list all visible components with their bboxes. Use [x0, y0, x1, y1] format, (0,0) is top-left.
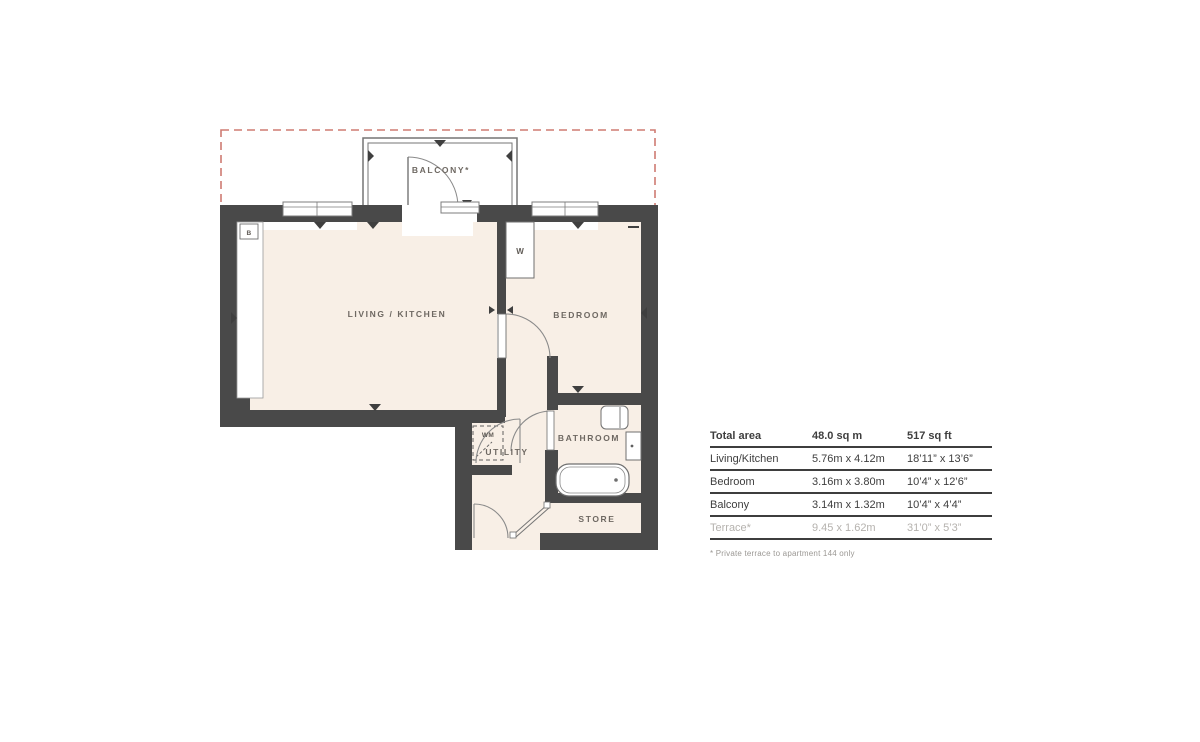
wall-divider-upper [497, 222, 506, 314]
row-label: Living/Kitchen [710, 453, 812, 465]
table-header-row: Total area 48.0 sq m 517 sq ft [710, 425, 992, 448]
balcony-door-sill [441, 202, 479, 213]
table-row-balcony: Balcony 3.14m x 1.32m 10’4” x 4’4” [710, 494, 992, 517]
total-area-metric: 48.0 sq m [812, 430, 907, 442]
wall-utility-top [472, 410, 505, 423]
total-area-imperial: 517 sq ft [907, 430, 992, 442]
row-label: Terrace* [710, 522, 812, 534]
wardrobe-label: W [516, 247, 524, 256]
window-b-bay [532, 222, 598, 230]
floorplan-drawing: LIVING / KITCHEN BEDROOM BATHROOM UTILIT… [0, 0, 1200, 742]
bathtub [556, 464, 629, 496]
floorplan-page: { "floorplan": { "rooms": { "living_kitc… [0, 0, 1200, 742]
row-imperial: 31’0” x 5’3” [907, 522, 992, 534]
washing-machine-label: WM [482, 432, 494, 439]
wall-column [547, 356, 558, 410]
kitchen-counter [237, 222, 263, 398]
row-metric: 5.76m x 4.12m [812, 453, 907, 465]
room-label-bedroom: BEDROOM [553, 310, 609, 320]
room-label-balcony: BALCONY* [412, 165, 470, 175]
wall-utility-bottom [472, 465, 512, 475]
room-label-bathroom: BATHROOM [558, 433, 620, 443]
table-row-terrace: Terrace* 9.45 x 1.62m 31’0” x 5’3” [710, 517, 992, 540]
row-metric: 3.14m x 1.32m [812, 499, 907, 511]
room-label-living-kitchen: LIVING / KITCHEN [348, 309, 447, 319]
wall-divider-lower [497, 358, 506, 417]
wall-left-step [237, 398, 250, 427]
row-imperial: 18’11” x 13’6” [907, 453, 992, 465]
table-footnote: * Private terrace to apartment 144 only [710, 549, 992, 558]
dimensions-table: Total area 48.0 sq m 517 sq ft Living/Ki… [710, 425, 992, 558]
entry-opening-floor [472, 533, 540, 550]
row-imperial: 10’4” x 12’6” [907, 476, 992, 488]
bedroom-door-leaf [498, 314, 506, 358]
row-metric: 3.16m x 3.80m [812, 476, 907, 488]
table-row-living-kitchen: Living/Kitchen 5.76m x 4.12m 18’11” x 13… [710, 448, 992, 471]
row-label: Balcony [710, 499, 812, 511]
room-label-store: STORE [578, 514, 615, 524]
basin [626, 432, 641, 460]
table-row-bedroom: Bedroom 3.16m x 3.80m 10’4” x 12’6” [710, 471, 992, 494]
wall-right [641, 205, 658, 550]
wall-living-bottom [220, 410, 472, 427]
balcony-door-bay [402, 222, 473, 236]
bathroom-door-leaf [547, 411, 554, 450]
wall-bedroom-bottom [553, 393, 641, 405]
boiler-label: B [246, 230, 251, 237]
row-metric: 9.45 x 1.62m [812, 522, 907, 534]
row-label: Bedroom [710, 476, 812, 488]
vestibule-floor [505, 355, 547, 413]
wall-bottom [540, 533, 658, 550]
window-a [283, 202, 352, 216]
toilet [601, 406, 628, 429]
wall-hall-left [455, 410, 472, 550]
total-area-label: Total area [710, 430, 812, 442]
room-label-utility: UTILITY [485, 447, 528, 457]
row-imperial: 10’4” x 4’4” [907, 499, 992, 511]
